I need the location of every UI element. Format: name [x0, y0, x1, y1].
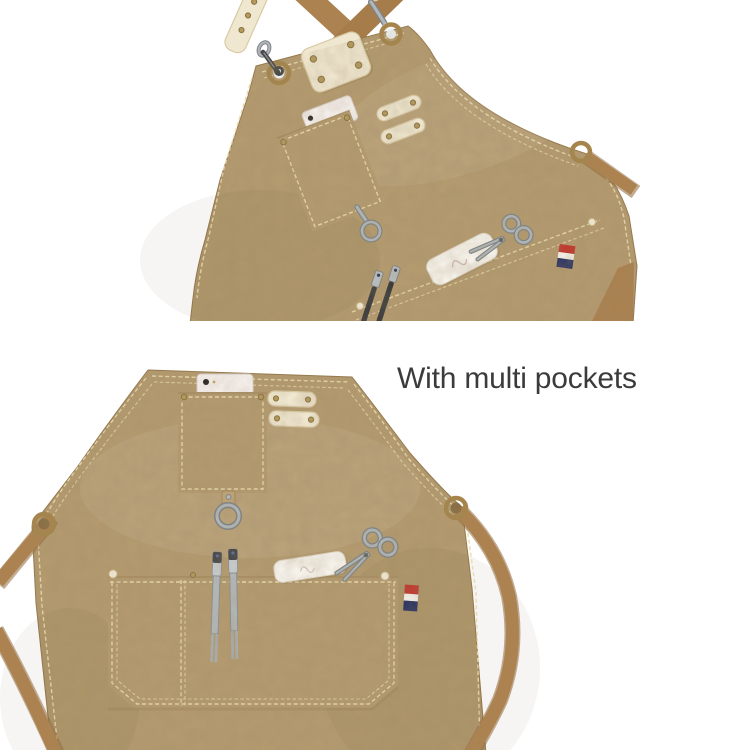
leather-shoulder-strap: [222, 0, 271, 57]
apron-front-view-photo: [0, 368, 750, 750]
apron-upper-detail-photo: [0, 0, 750, 330]
product-image: With multi pockets: [0, 0, 750, 750]
fabric-texture: [20, 368, 500, 750]
